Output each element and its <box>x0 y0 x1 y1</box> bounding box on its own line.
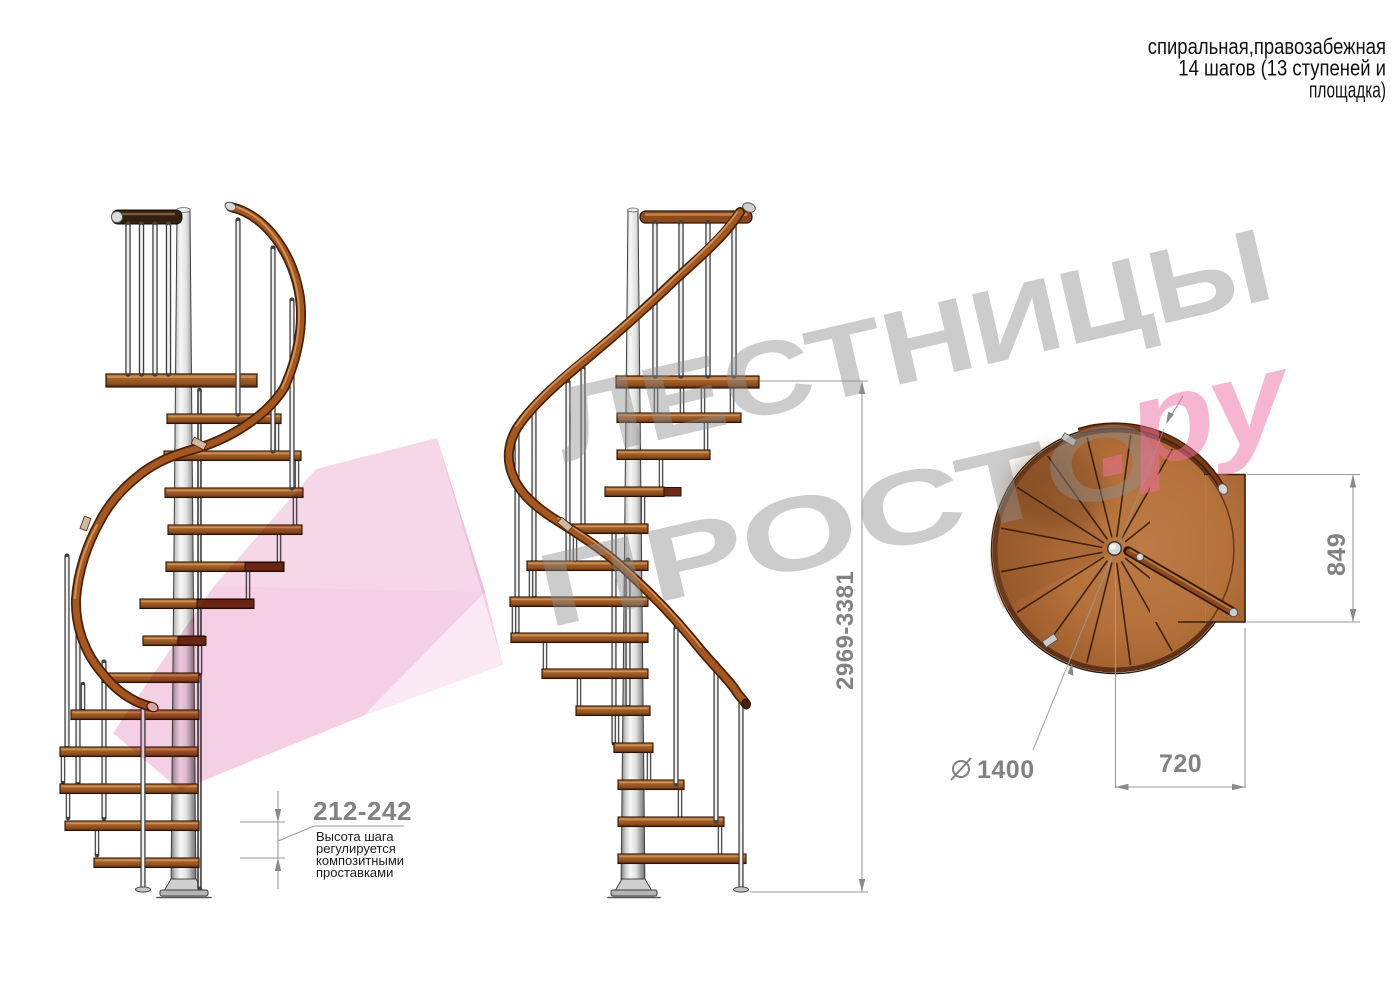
svg-text:720: 720 <box>1159 750 1202 778</box>
svg-text:212-242: 212-242 <box>313 796 412 826</box>
svg-text:2969-3381: 2969-3381 <box>832 571 859 690</box>
svg-text:1400: 1400 <box>977 756 1035 784</box>
svg-text:площадка): площадка) <box>1309 79 1386 103</box>
svg-text:проставками: проставками <box>316 865 393 880</box>
svg-text:спиральная,правозабежная: спиральная,правозабежная <box>1148 36 1386 60</box>
svg-text:14 шагов (13 ступеней и: 14 шагов (13 ступеней и <box>1178 57 1386 81</box>
svg-text:849: 849 <box>1323 533 1351 576</box>
